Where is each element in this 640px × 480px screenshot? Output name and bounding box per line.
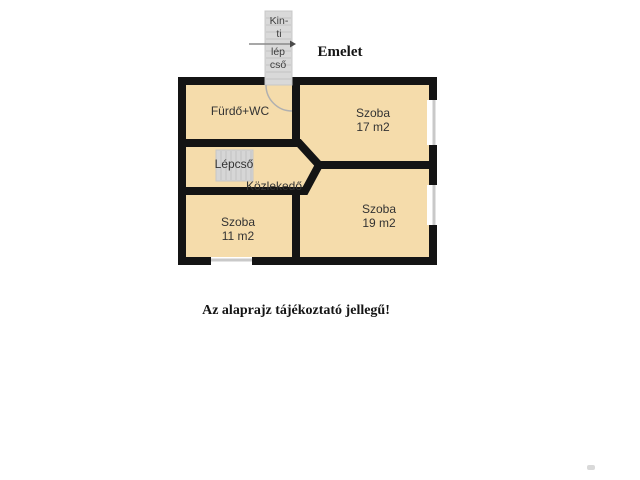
artifact-smudge xyxy=(587,465,595,470)
disclaimer-text: Az alaprajz tájékoztató jellegű! xyxy=(202,303,390,319)
room-label-hallway: Közlekedő xyxy=(246,179,302,193)
outdoor-stairs-label-bottom: lép cső xyxy=(270,46,286,71)
outdoor-stairs-label-top: Kin- ti xyxy=(270,15,289,40)
room-label-bathroom: Fürdő+WC xyxy=(211,104,269,118)
room-label-room19: Szoba 19 m2 xyxy=(362,202,396,230)
floor-plan-page: Kin- ti lép cső Emelet Fürdő+WC Szoba 17… xyxy=(0,0,640,480)
floor-plan-drawing xyxy=(0,0,640,480)
room-label-stairs: Lépcső xyxy=(215,157,254,171)
stair-direction-arrow-icon xyxy=(290,41,296,48)
page-title: Emelet xyxy=(318,44,363,60)
room-label-room11: Szoba 11 m2 xyxy=(221,215,255,243)
room-label-room17: Szoba 17 m2 xyxy=(356,106,390,134)
